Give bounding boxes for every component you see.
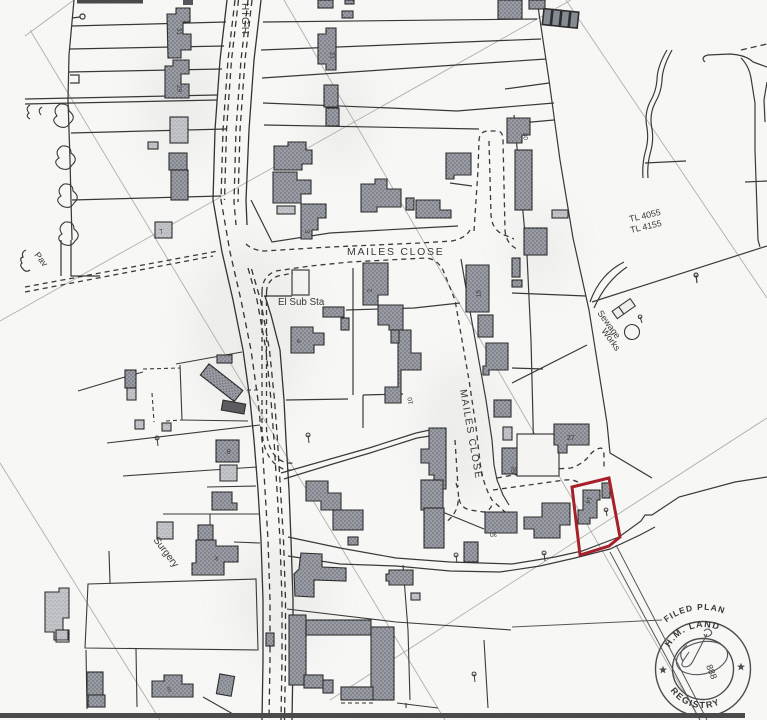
svg-text:MAILES CLOSE: MAILES CLOSE [347, 246, 444, 258]
svg-text:30: 30 [489, 530, 497, 538]
svg-text:21: 21 [328, 52, 336, 60]
svg-text:El Sub Sta: El Sub Sta [278, 297, 325, 308]
svg-text:HIGH: HIGH [239, 3, 250, 36]
svg-text:29: 29 [175, 85, 183, 93]
svg-text:27: 27 [567, 435, 575, 442]
svg-text:30: 30 [521, 133, 529, 141]
svg-text:31: 31 [175, 28, 183, 36]
svg-text:15: 15 [475, 289, 483, 297]
